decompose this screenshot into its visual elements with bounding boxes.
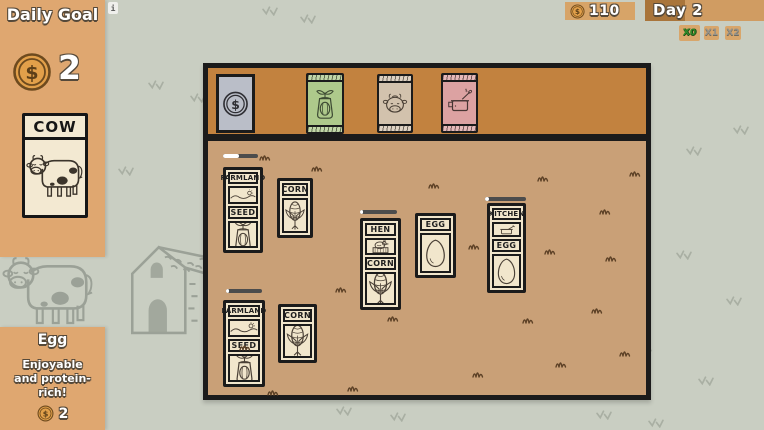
packet-crinkle [443,75,476,82]
cow-face-icon [381,90,409,118]
grass-tuft [598,206,611,215]
hen-card-title: HEN [365,223,396,236]
grass-check-mark [262,6,278,16]
money-panel: 110 [565,2,635,20]
grass-tuft [467,241,480,250]
grass-tuft [521,315,534,324]
pan-utensil-icon [492,222,521,237]
farmland-card-title: FARMLAND [228,172,258,184]
hills-landscape-icon [228,186,258,204]
corn-card-title: CORN [282,183,308,196]
packet-crinkle [379,76,411,83]
corn-card-1[interactable]: CORN [277,178,313,238]
corn-card-title: CORN [365,257,396,270]
grass-tuft [618,348,631,357]
farmland1-progress-bar [223,154,258,158]
progress-fill [226,289,229,293]
grass-tuft [386,313,399,322]
daily-goal-panel: Daily Goal 2 COW [0,0,105,257]
seed-packet-green[interactable] [306,73,344,134]
dollar-card-icon [219,79,252,129]
cow-illustration [26,144,84,210]
grass-check-mark [336,406,352,416]
progress-fill [485,197,489,201]
grass-check-mark [596,410,612,420]
item-info-panel: Egg Enjoyable and protein-rich! 2 [0,327,105,430]
farmland-seed-stack-1[interactable]: FARMLAND SEED [223,167,263,253]
grass-tuft [471,369,484,378]
seed-card-title: SEED [228,206,258,219]
farmland-card-title: FARMLAND [228,305,260,317]
progress-fill [360,210,363,214]
hen-progress-bar [360,210,397,214]
corn-cob-icon [365,272,396,305]
speed-x2-button[interactable]: X2 [725,26,741,40]
grass-tuft [258,152,271,161]
money-amount: 110 [589,3,620,19]
packet-crinkle [443,124,476,131]
coin-icon [570,4,585,19]
egg-icon [492,254,521,288]
grass-tuft [334,284,347,293]
sprout-pouch-icon [228,221,258,248]
daily-goal-title: Daily Goal [0,5,105,24]
grass-check-mark [726,296,742,306]
item-description: Enjoyable and protein-rich! [0,358,105,400]
info-badge[interactable]: i [108,2,118,14]
grass-check-mark [648,418,664,428]
grass-tuft [628,168,641,177]
grass-check-mark [698,376,714,386]
corn-cob-icon [283,324,312,358]
grass-tuft [427,180,440,189]
grass-tuft [346,383,359,392]
item-price-row: 2 [0,405,105,422]
sprout-pouch-icon [312,86,339,122]
packet-crinkle [308,75,342,82]
item-name: Egg [0,332,105,348]
goal-cow-card: COW [22,113,88,218]
grass-tuft [554,359,567,368]
egg-card-title: EGG [492,239,521,252]
kitchen-packet-pink[interactable] [441,73,478,133]
day-panel: Day 2 [645,0,764,21]
grass-check-mark [300,14,316,24]
grass-check-mark [148,80,164,90]
kitchen-egg-stack[interactable]: KITCHEN EGG [487,203,526,293]
egg-card-title: EGG [420,218,451,231]
speed-x1-button[interactable]: X1 [704,26,719,40]
egg-icon [420,233,451,273]
corn-cob-icon [282,198,308,233]
item-price: 2 [59,406,69,422]
daily-goal-amount: 2 [58,48,81,87]
farmland2-progress-bar [226,289,262,293]
day-label: Day 2 [653,1,703,19]
kitchen-progress-bar [485,197,526,201]
packet-crinkle [308,125,342,132]
grass-tuft [590,305,603,314]
corn-card-2[interactable]: CORN [278,304,317,363]
grass-check-mark [676,250,692,260]
game-board: FARMLAND SEED CORN HEN CORN [203,63,651,400]
shop-bar [208,68,646,141]
hen-in-nest-icon [365,238,396,255]
progress-fill [223,154,239,158]
grass-tuft [536,173,549,182]
grass-check-mark [118,166,134,176]
grass-tuft [604,253,617,262]
coin-icon [12,52,52,92]
cow-packet[interactable] [377,74,413,133]
goal-card-title: COW [25,116,85,140]
cooking-pot-icon [445,88,475,118]
coin-icon [37,405,54,422]
speed-x0-button[interactable]: X0 [679,25,700,41]
kitchen-card-title: KITCHEN [492,208,521,220]
grass-tuft [543,246,556,255]
grass-tuft [266,387,279,396]
packet-crinkle [379,124,411,131]
egg-card[interactable]: EGG [415,213,456,278]
game-screen: $ $ [0,0,764,430]
grass-tuft [310,163,323,172]
grass-check-mark [390,412,406,422]
hills-landscape-icon [228,319,260,337]
corn-card-title: CORN [283,309,312,322]
money-card[interactable] [216,74,255,133]
grass-check-mark [686,146,702,156]
faded-cow-illustration [2,253,95,332]
grass-check-mark [733,125,749,135]
hen-corn-stack[interactable]: HEN CORN [360,218,401,310]
sprout-pouch-icon [228,354,260,382]
grass-tuft [238,342,251,351]
